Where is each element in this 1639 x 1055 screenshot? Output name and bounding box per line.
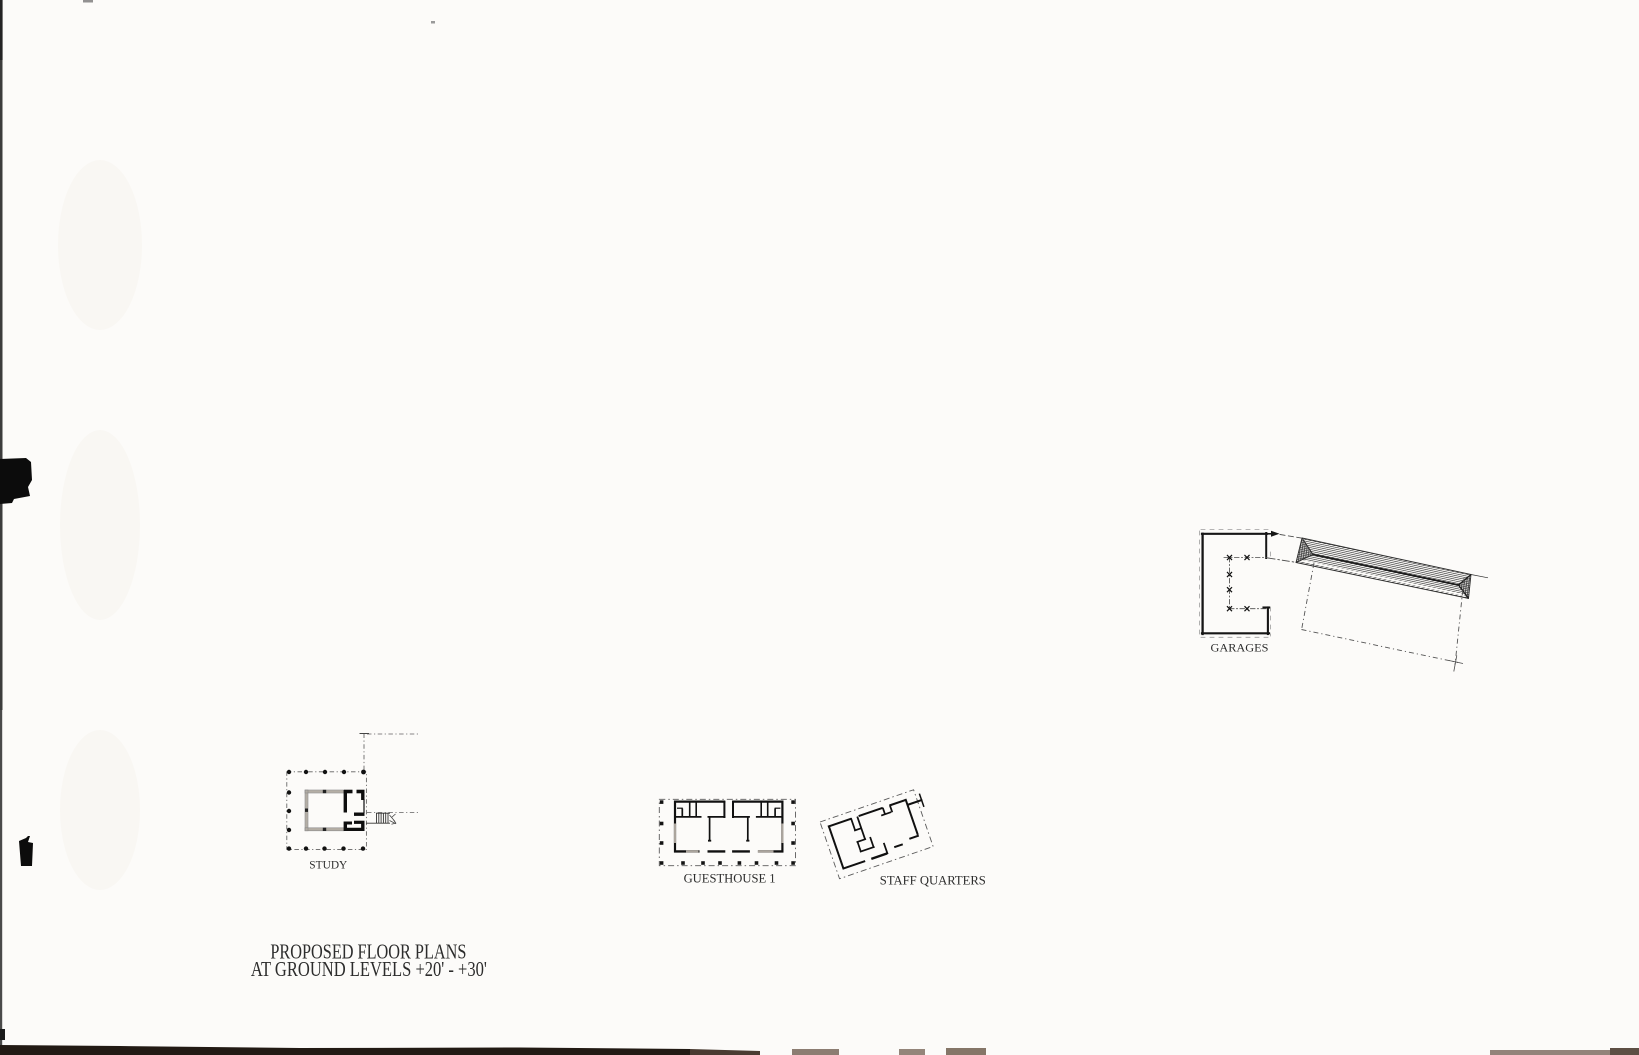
svg-text:STUDY: STUDY [309,860,348,872]
svg-text:GUESTHOUSE 1: GUESTHOUSE 1 [684,871,776,886]
svg-text:AT GROUND LEVELS +20' - +30': AT GROUND LEVELS +20' - +30' [251,957,487,981]
svg-text:GARAGES: GARAGES [1211,643,1269,655]
svg-text:STAFF QUARTERS: STAFF QUARTERS [880,873,986,888]
